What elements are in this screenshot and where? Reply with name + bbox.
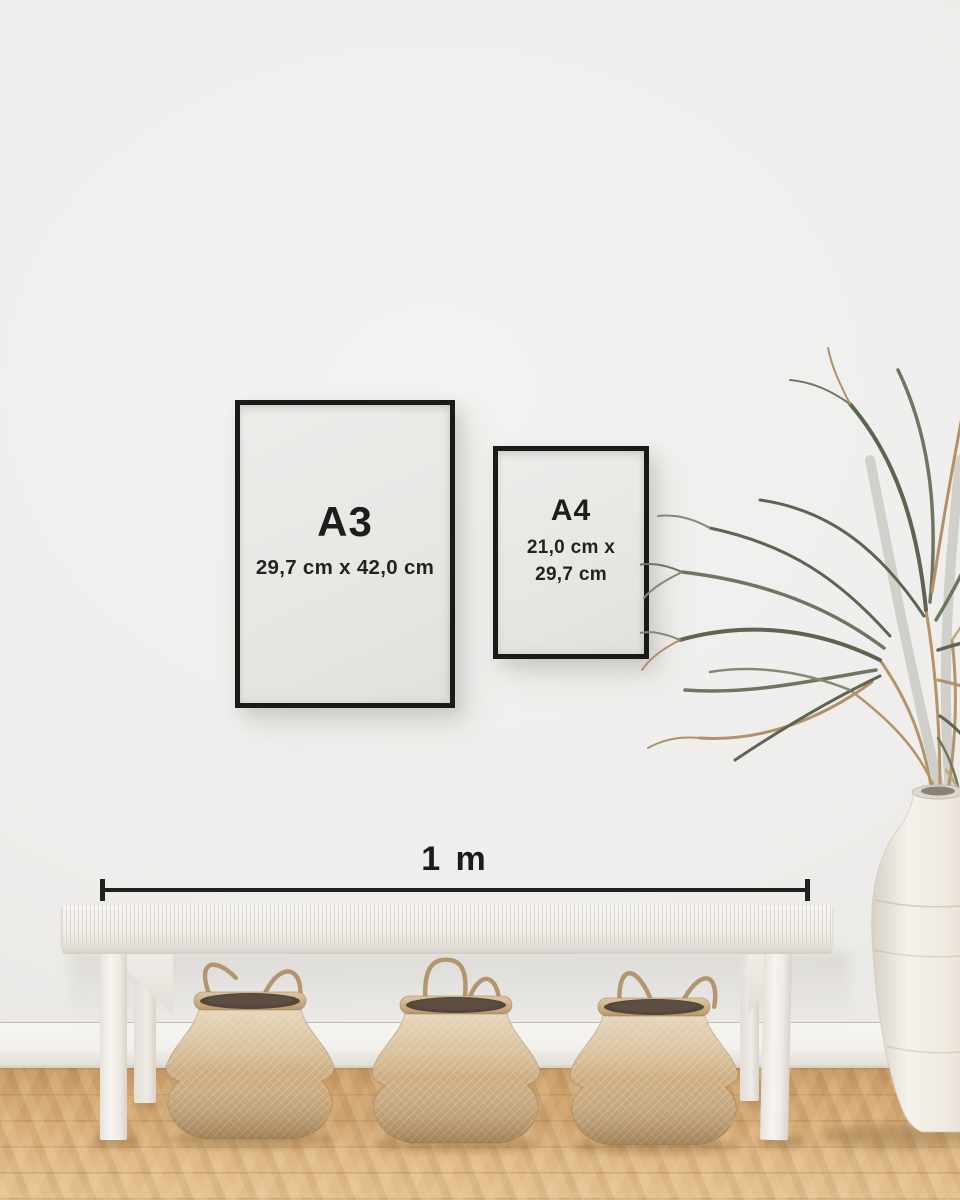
a3-size-label: A3 — [256, 501, 434, 543]
palm-plant-and-vase — [640, 340, 960, 1160]
scale-label: 1 m — [421, 840, 489, 879]
a4-frame: A4 21,0 cm x 29,7 cm — [493, 446, 649, 659]
basket-middle — [370, 960, 542, 1152]
room-scene: A3 29,7 cm x 42,0 cm A4 21,0 cm x 29,7 c… — [0, 0, 960, 1200]
a4-poster-paper: A4 21,0 cm x 29,7 cm — [498, 451, 644, 654]
a3-frame: A3 29,7 cm x 42,0 cm — [235, 400, 455, 708]
bench-leg-front-left — [100, 953, 127, 1140]
a4-dimensions-line1: 21,0 cm x — [527, 537, 615, 558]
a3-poster-paper: A3 29,7 cm x 42,0 cm — [240, 405, 450, 703]
a4-size-label: A4 — [506, 496, 636, 526]
basket-left — [164, 965, 336, 1148]
a4-dimensions: 21,0 cm x 29,7 cm — [506, 535, 636, 588]
scale-tick-left — [100, 879, 105, 901]
a4-dimensions-line2: 29,7 cm — [535, 564, 607, 585]
floor-vase — [872, 785, 960, 1132]
a3-dimensions: 29,7 cm x 42,0 cm — [256, 554, 434, 583]
